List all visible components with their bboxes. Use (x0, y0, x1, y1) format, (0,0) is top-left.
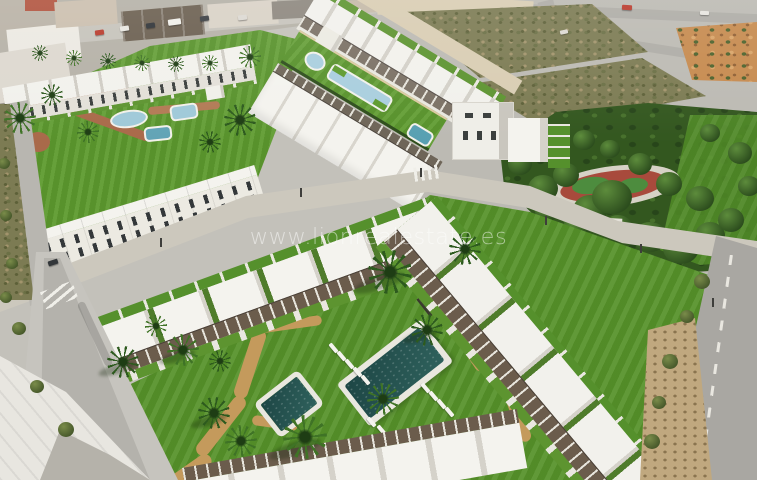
palm-tree (107, 346, 139, 378)
palm-tree (198, 397, 230, 429)
palm-tree (283, 415, 327, 459)
corner-building-backyard (548, 124, 570, 168)
palm-tree (239, 46, 261, 68)
pine-tree (728, 142, 752, 164)
building-window (477, 131, 482, 140)
watermark-text: www.lionrealestate.es (250, 224, 508, 250)
building-window (491, 131, 496, 140)
pine-tree (592, 180, 632, 214)
palm-tree (202, 55, 218, 71)
roadside-tree (6, 258, 18, 269)
building-window (483, 113, 491, 118)
corner-building-annex (508, 118, 548, 162)
roadside-tree (30, 380, 44, 393)
town-building (54, 0, 118, 28)
palm-tree (134, 55, 150, 71)
palm-tree (100, 53, 116, 69)
palm-tree (4, 102, 36, 134)
roadside-tree (0, 210, 12, 221)
palm-tree (168, 56, 184, 72)
pine-tree (686, 186, 714, 211)
palm-tree (224, 104, 256, 136)
street-lamp (420, 168, 422, 177)
building-window (465, 113, 473, 118)
palm-tree (199, 131, 221, 153)
town-building (25, 0, 57, 11)
pine-tree (573, 130, 595, 150)
palm-tree (77, 121, 99, 143)
red-car-top-road (622, 5, 632, 11)
roadside-tree (12, 322, 26, 335)
street-lamp (300, 188, 302, 197)
street-lamp (640, 244, 642, 253)
parked-car (238, 15, 247, 21)
pine-tree (700, 124, 720, 142)
palm-tree (367, 383, 399, 415)
town-building (121, 4, 205, 41)
street-lamp (712, 298, 714, 307)
roadside-tree (680, 310, 694, 323)
roadside-tree (644, 434, 660, 449)
roadside-tree (652, 396, 666, 409)
pine-tree (656, 172, 682, 196)
pine-tree (718, 208, 744, 232)
palm-tree (41, 84, 63, 106)
roadside-tree (58, 422, 74, 437)
roadside-tree (0, 292, 12, 303)
palm-tree (167, 334, 199, 366)
roadside-tree (662, 354, 678, 369)
palm-tree (368, 250, 412, 294)
palm-tree (32, 45, 48, 61)
palm-tree (209, 350, 231, 372)
aerial-render-scene: www.lionrealestate.es (0, 0, 757, 480)
roadside-tree (694, 274, 710, 289)
street-lamp (545, 216, 547, 225)
palm-tree (145, 315, 167, 337)
building-window (463, 131, 468, 140)
strip-round-pool (304, 51, 327, 72)
street-lamp (160, 238, 162, 247)
palm-tree (225, 425, 257, 457)
palm-tree (411, 314, 443, 346)
pine-tree (628, 153, 652, 175)
white-car-top-road (700, 11, 709, 15)
pine-tree (738, 176, 757, 196)
palm-tree (66, 50, 82, 66)
pine-tree (600, 140, 620, 158)
corner-apartment-building (452, 102, 514, 160)
